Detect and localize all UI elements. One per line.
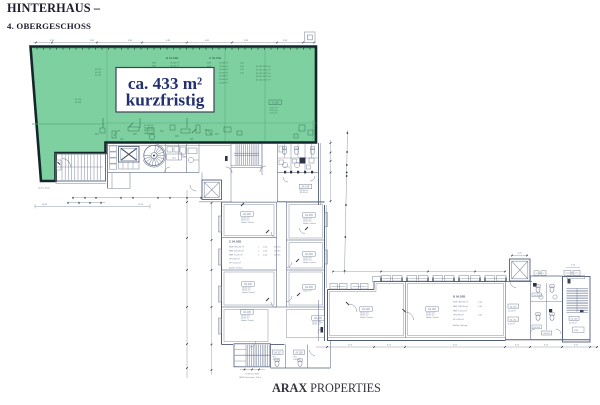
- svg-text:04.120: 04.120: [95, 75, 102, 77]
- svg-text:1,00: 1,00: [263, 251, 268, 253]
- svg-text:6,40 m²: 6,40 m²: [294, 358, 301, 361]
- svg-text:04.132 18,25 m²: 04.132 18,25 m²: [256, 79, 271, 82]
- svg-text:Boden: Parkett: Boden: Parkett: [303, 261, 316, 264]
- svg-text:04.132 18,25 m²: 04.132 18,25 m²: [256, 65, 271, 68]
- svg-text:kurzfristig: kurzfristig: [126, 91, 205, 110]
- svg-text:250,85 m²: 250,85 m²: [219, 68, 228, 71]
- svg-text:FF 72,20 m²: FF 72,20 m²: [229, 262, 241, 265]
- svg-text:x: x: [258, 247, 259, 249]
- svg-text:x: x: [258, 251, 259, 253]
- svg-text:6,05: 6,05: [515, 344, 520, 346]
- svg-text:2,26: 2,26: [517, 253, 522, 255]
- svg-text:VF 9,80 m²: VF 9,80 m²: [229, 258, 240, 261]
- svg-text:04.145: 04.145: [305, 214, 313, 217]
- svg-text:C 04.01B: C 04.01B: [209, 56, 221, 60]
- svg-text:B 04.02B: B 04.02B: [453, 295, 465, 299]
- svg-text:04.164: 04.164: [543, 333, 550, 335]
- svg-text:182,35 m²: 182,35 m²: [170, 62, 179, 65]
- svg-text:8,15 m²: 8,15 m²: [508, 323, 515, 326]
- svg-text:25,15 m²: 25,15 m²: [270, 107, 278, 110]
- svg-text:Boden: Parkett: Boden: Parkett: [360, 316, 373, 319]
- svg-text:3,13: 3,13: [571, 265, 576, 267]
- svg-text:HNF 425,20 m²: HNF 425,20 m²: [229, 250, 244, 253]
- svg-text:3,85: 3,85: [283, 40, 288, 42]
- svg-text:82,45 m²: 82,45 m²: [300, 191, 309, 194]
- svg-text:3,85: 3,85: [50, 40, 55, 42]
- svg-text:04.118: 04.118: [75, 102, 82, 104]
- svg-text:6,05: 6,05: [348, 344, 353, 346]
- svg-text:VF 8,90 m²: VF 8,90 m²: [453, 314, 464, 317]
- svg-text:82,45 m²: 82,45 m²: [303, 289, 312, 292]
- svg-text:250,85 m²: 250,85 m²: [219, 75, 228, 78]
- svg-text:04.145: 04.145: [244, 283, 252, 286]
- svg-text:NGF 302,35 m²: NGF 302,35 m²: [453, 301, 468, 304]
- svg-text:HNF 248,20 m²: HNF 248,20 m²: [453, 305, 468, 308]
- svg-text:180/110 Geschossh. 3,20 m: 180/110 Geschossh. 3,20 m: [239, 377, 262, 379]
- svg-text:12,20 m²: 12,20 m²: [508, 310, 516, 313]
- svg-text:04.118: 04.118: [75, 99, 82, 101]
- svg-text:04.145: 04.145: [305, 286, 313, 289]
- svg-text:Boden: Parkett: Boden: Parkett: [303, 222, 316, 225]
- svg-text:Boden: Parkett: Boden: Parkett: [426, 316, 439, 319]
- svg-text:250,85 m²: 250,85 m²: [219, 65, 228, 68]
- svg-text:3,85: 3,85: [205, 40, 210, 42]
- svg-text:B 04.04B: B 04.04B: [166, 56, 178, 60]
- svg-text:6,05: 6,05: [544, 344, 549, 346]
- svg-text:FF 6,80 m²: FF 6,80 m²: [453, 318, 464, 321]
- svg-text:22,50 m²: 22,50 m²: [569, 322, 577, 325]
- svg-text:04.1: 04.1: [172, 158, 177, 160]
- svg-text:6,05: 6,05: [387, 344, 392, 346]
- svg-text:12,05: 12,05: [138, 204, 144, 206]
- svg-text:04.130: 04.130: [272, 101, 280, 104]
- svg-text:1,00: 1,00: [263, 255, 268, 257]
- svg-text:Boden: Parkett: Boden: Parkett: [229, 267, 243, 270]
- svg-text:250,85 m²: 250,85 m²: [219, 62, 228, 65]
- svg-text:3,85: 3,85: [128, 40, 133, 42]
- svg-text:1,00: 1,00: [478, 306, 483, 308]
- svg-text:6,05: 6,05: [453, 344, 458, 346]
- svg-text:250,85 m²: 250,85 m²: [219, 81, 228, 84]
- svg-text:04.120: 04.120: [95, 72, 102, 74]
- svg-text:04.163: 04.163: [534, 327, 541, 329]
- svg-text:250,85 m²: 250,85 m²: [219, 78, 228, 81]
- svg-text:04.145: 04.145: [428, 308, 436, 311]
- svg-text:502,35: 502,35: [274, 251, 281, 253]
- svg-text:4,25 m²: 4,25 m²: [273, 358, 280, 361]
- svg-text:1,00: 1,00: [263, 247, 268, 249]
- svg-text:25,15 m²: 25,15 m²: [270, 109, 278, 112]
- svg-text:502,35: 502,35: [274, 247, 281, 249]
- svg-text:25,15 m²: 25,15 m²: [270, 112, 278, 115]
- svg-text:04.132 18,25 m²: 04.132 18,25 m²: [256, 75, 271, 78]
- svg-text:04.166: 04.166: [571, 319, 578, 321]
- svg-text:04.145: 04.145: [243, 213, 251, 216]
- svg-text:NGF 502,35 m²: NGF 502,35 m²: [229, 246, 244, 249]
- svg-text:04.145: 04.145: [305, 253, 313, 256]
- svg-text:04.145: 04.145: [362, 308, 370, 311]
- svg-text:04.132 18,25 m²: 04.132 18,25 m²: [256, 72, 271, 75]
- svg-text:04.145: 04.145: [243, 311, 251, 314]
- svg-text:82,45 m²: 82,45 m²: [312, 323, 321, 326]
- svg-text:3,85: 3,85: [90, 40, 95, 42]
- svg-text:502,35: 502,35: [274, 255, 281, 257]
- svg-text:18 STG 17,6/28: 18 STG 17,6/28: [245, 374, 258, 376]
- svg-text:04.160: 04.160: [510, 306, 517, 308]
- svg-text:250,85 m²: 250,85 m²: [219, 71, 228, 74]
- svg-text:Boden: Parkett: Boden: Parkett: [242, 291, 255, 294]
- svg-text:04.158: 04.158: [295, 353, 303, 355]
- svg-text:04.120: 04.120: [95, 69, 102, 71]
- svg-text:04.132 18,25 m²: 04.132 18,25 m²: [256, 68, 271, 71]
- svg-text:04.162: 04.162: [534, 295, 541, 297]
- svg-text:1234: 1234: [574, 330, 579, 332]
- svg-text:C 04.02B: C 04.02B: [229, 240, 241, 244]
- svg-text:NNF 12,50 m²: NNF 12,50 m²: [453, 309, 467, 312]
- svg-text:Boden: Parkett: Boden: Parkett: [241, 319, 254, 322]
- svg-text:24,85: 24,85: [42, 204, 48, 206]
- svg-text:1,00: 1,00: [478, 302, 483, 304]
- svg-text:04.145: 04.145: [302, 186, 310, 189]
- svg-text:Boden: Dielung: Boden: Dielung: [453, 325, 468, 327]
- svg-text:6,05: 6,05: [574, 344, 579, 346]
- svg-text:04.157: 04.157: [274, 353, 282, 355]
- svg-text:3,85: 3,85: [166, 40, 171, 42]
- svg-text:3,85: 3,85: [244, 40, 249, 42]
- svg-text:±0,00 = 34,50: ±0,00 = 34,50: [38, 188, 50, 190]
- svg-text:NNF 12,25 m²: NNF 12,25 m²: [229, 254, 243, 257]
- svg-text:x: x: [258, 255, 259, 257]
- svg-text:1,00: 1,00: [478, 315, 483, 317]
- svg-text:Boden: Parkett: Boden: Parkett: [241, 221, 254, 224]
- svg-text:04.161: 04.161: [510, 319, 517, 321]
